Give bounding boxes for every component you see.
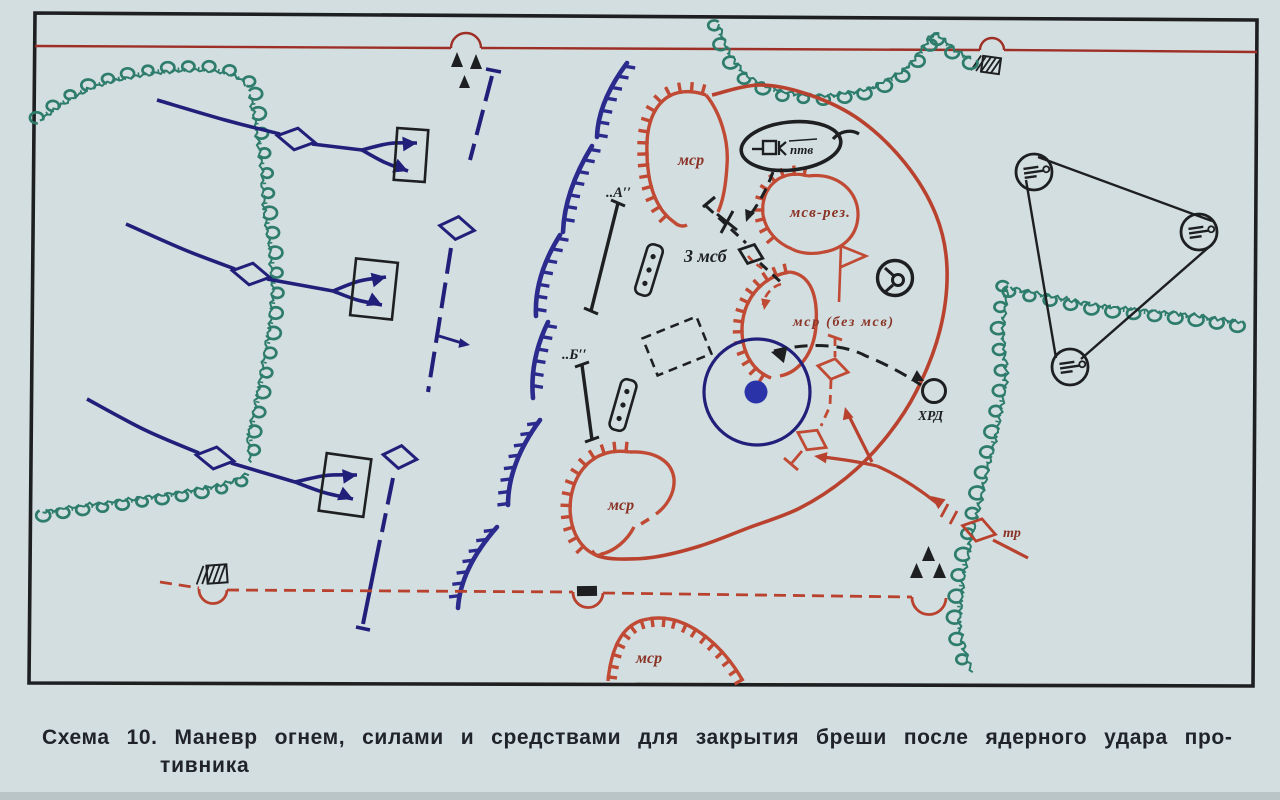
- svg-text:..Б′′: ..Б′′: [562, 347, 587, 363]
- svg-text:ХРД: ХРД: [917, 408, 944, 423]
- svg-text:мср: мср: [607, 497, 634, 514]
- svg-text:мср: мср: [635, 650, 662, 667]
- svg-text:мср (без мсв): мср (без мсв): [792, 315, 895, 330]
- svg-text:..А′′: ..А′′: [606, 185, 631, 201]
- svg-text:тивника: тивника: [160, 754, 250, 777]
- svg-text:Схема 10. Маневр огнем, силами: Схема 10. Маневр огнем, силами и средств…: [42, 726, 1232, 749]
- svg-text:птв: птв: [790, 142, 813, 157]
- svg-text:мср: мср: [677, 152, 704, 169]
- svg-text:тр: тр: [1003, 526, 1021, 541]
- svg-text:мсв-рез.: мсв-рез.: [789, 205, 851, 221]
- svg-text:3 мсб: 3 мсб: [683, 246, 728, 266]
